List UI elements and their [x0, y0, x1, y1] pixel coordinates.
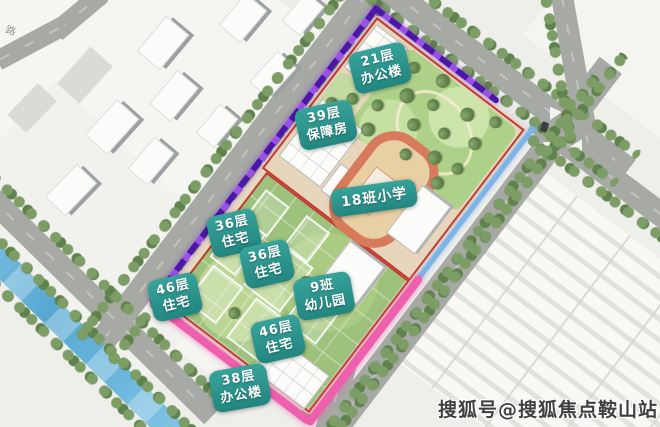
site-plan-map: 21层 办公楼 39层 保障房 18班小学 36层 住宅 36层 住宅 46层 …: [0, 0, 660, 427]
watermark: 搜狐号@搜狐焦点鞍山站: [438, 395, 658, 422]
label-line: 幼儿园: [303, 292, 347, 316]
label-office-38f: 38层 办公楼: [208, 362, 272, 413]
label-line: 18班小学: [340, 184, 408, 211]
